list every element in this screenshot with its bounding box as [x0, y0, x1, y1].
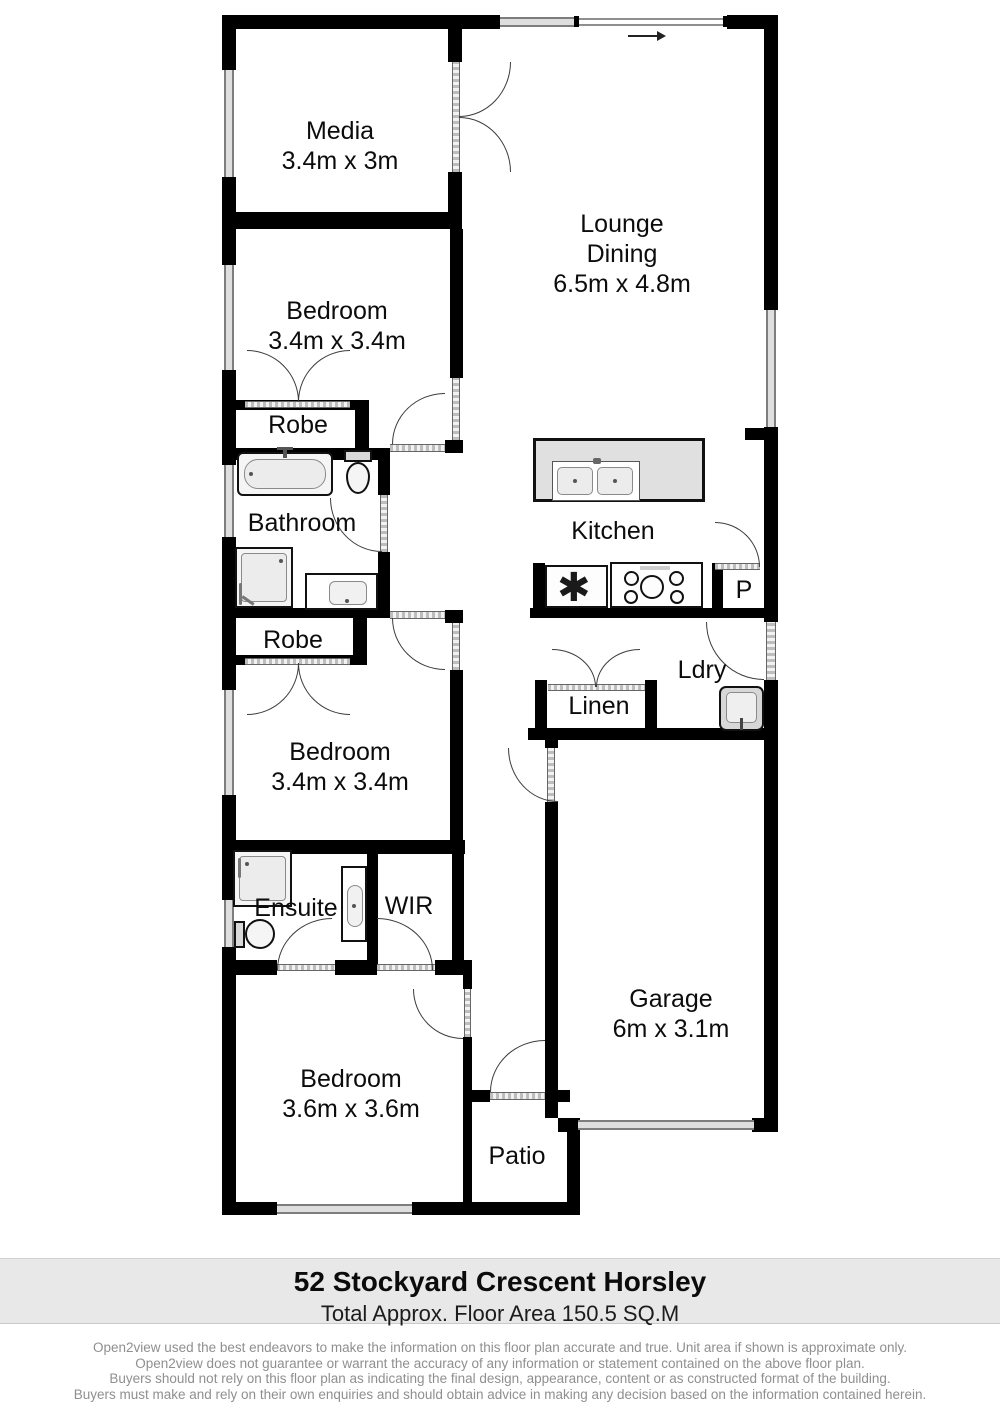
vanity-icon	[305, 573, 378, 610]
room-name: P	[736, 575, 753, 605]
door-arc	[490, 1040, 545, 1092]
room-label-patio: Patio	[489, 1141, 546, 1171]
wall	[222, 960, 277, 975]
wall	[222, 947, 236, 1215]
wall	[378, 448, 390, 495]
toilet-icon	[245, 919, 275, 949]
door-opening	[390, 444, 445, 452]
wall	[463, 975, 472, 989]
bathtub-icon	[237, 452, 333, 496]
room-label-pantry: P	[736, 575, 753, 605]
disclaimer-line: Open2view used the best endeavors to mak…	[0, 1340, 1000, 1356]
wall	[558, 1118, 580, 1132]
room-name: Robe	[268, 410, 328, 440]
room-label-bathroom: Bathroom	[248, 508, 356, 538]
sink-icon	[552, 461, 640, 501]
toilet-icon	[344, 450, 372, 462]
kitchen-island	[533, 438, 705, 502]
room-label-ensuite: Ensuite	[254, 893, 337, 923]
door-opening	[452, 623, 460, 670]
disclaimer: Open2view used the best endeavors to mak…	[0, 1340, 1000, 1402]
room-label-lounge-dining: Lounge Dining 6.5m x 4.8m	[553, 209, 691, 299]
wall	[712, 563, 723, 613]
door-arc	[715, 522, 760, 567]
tap-icon	[593, 458, 601, 464]
door-arc	[247, 663, 299, 715]
wall	[222, 212, 462, 229]
wall	[445, 440, 463, 453]
door-arc	[413, 989, 463, 1039]
door-arc	[392, 393, 445, 444]
toilet-icon	[346, 462, 370, 494]
window	[277, 1204, 412, 1214]
room-dims: 3.4m x 3.4m	[271, 767, 409, 797]
door-jamb	[574, 16, 579, 27]
room-label-linen: Linen	[568, 691, 629, 721]
room-dims: 6m x 3.1m	[613, 1014, 730, 1044]
room-name: Robe	[263, 625, 323, 655]
room-name: Patio	[489, 1141, 546, 1171]
room-label-media: Media 3.4m x 3m	[282, 116, 399, 176]
wall	[378, 552, 390, 614]
door-jamb	[723, 16, 728, 27]
wall	[445, 610, 463, 623]
entry-arrow	[628, 31, 668, 41]
door-opening	[452, 378, 460, 440]
door-arc	[277, 918, 332, 970]
glazed-door	[766, 622, 776, 680]
wall	[567, 1132, 580, 1215]
window	[224, 690, 234, 795]
room-label-wir: WIR	[385, 891, 434, 921]
room-label-bedroom3: Bedroom 3.6m x 3.6m	[282, 1064, 420, 1124]
wall	[448, 172, 462, 229]
door-arc	[459, 62, 511, 117]
room-label-bedroom1: Bedroom 3.4m x 3.4m	[268, 296, 406, 356]
room-name: Bedroom	[282, 1064, 420, 1094]
room-name: Ldry	[678, 655, 727, 685]
door-arc	[459, 117, 511, 172]
room-label-garage: Garage 6m x 3.1m	[613, 984, 730, 1044]
wall	[545, 802, 558, 1118]
room-label-bedroom2: Bedroom 3.4m x 3.4m	[271, 737, 409, 797]
disclaimer-line: Buyers should not rely on this floor pla…	[0, 1371, 1000, 1387]
wall	[764, 427, 778, 622]
wall	[450, 229, 463, 378]
door-opening	[490, 1092, 545, 1100]
room-dims: 3.4m x 3.4m	[268, 326, 406, 356]
door-arc	[247, 350, 299, 402]
room-name: Garage	[613, 984, 730, 1014]
room-name: Lounge	[553, 209, 691, 239]
wall	[472, 1090, 490, 1102]
wall	[745, 428, 778, 440]
room-name: WIR	[385, 891, 434, 921]
door-arc	[298, 663, 350, 715]
window	[224, 900, 234, 947]
garage-door	[578, 1120, 754, 1130]
wall	[752, 1118, 778, 1132]
door-arc	[298, 350, 350, 402]
room-dims: 6.5m x 4.8m	[553, 269, 691, 299]
wall	[545, 728, 558, 748]
wall	[764, 680, 778, 1132]
window	[224, 265, 234, 370]
floor-area: Total Approx. Floor Area 150.5 SQ.M	[0, 1301, 1000, 1327]
room-name: Kitchen	[571, 516, 654, 546]
room-dims: 3.6m x 3.6m	[282, 1094, 420, 1124]
room-name: Bathroom	[248, 508, 356, 538]
window	[500, 17, 577, 27]
appliance-icon: ✱	[545, 565, 608, 608]
wall	[533, 563, 545, 613]
floorplan-page: ✱ Media 3.4m x 3m Lounge Dining 6.5m x 4…	[0, 0, 1000, 1415]
disclaimer-line: Buyers must make and rely on their own e…	[0, 1387, 1000, 1403]
room-name: Bedroom	[268, 296, 406, 326]
room-name: Dining	[553, 239, 691, 269]
sliding-door	[577, 24, 725, 26]
wall	[222, 15, 236, 70]
wall	[412, 1202, 580, 1215]
appliance-symbol: ✱	[557, 568, 591, 608]
footer-band: 52 Stockyard Crescent Horsley Total Appr…	[0, 1258, 1000, 1324]
wall	[452, 845, 464, 967]
wall	[645, 680, 657, 740]
room-name: Bedroom	[271, 737, 409, 767]
room-label-robe2: Robe	[263, 625, 323, 655]
wall	[448, 15, 462, 62]
wall	[355, 400, 369, 448]
sliding-door	[577, 18, 725, 20]
door-arc	[552, 649, 596, 687]
room-dims: 3.4m x 3m	[282, 146, 399, 176]
room-name: Linen	[568, 691, 629, 721]
wall	[353, 618, 367, 665]
shower-icon	[235, 547, 293, 608]
door-arc	[377, 918, 433, 970]
wall	[222, 1202, 277, 1215]
property-address: 52 Stockyard Crescent Horsley	[0, 1266, 1000, 1298]
room-label-laundry: Ldry	[678, 655, 727, 685]
door-opening	[464, 989, 471, 1037]
door-arc	[392, 618, 445, 670]
cooktop-icon	[610, 562, 703, 608]
window	[224, 70, 234, 177]
door-arc	[596, 649, 640, 687]
toilet-icon	[234, 921, 245, 948]
window	[224, 465, 234, 537]
wall	[764, 15, 778, 310]
room-name: Ensuite	[254, 893, 337, 923]
room-name: Media	[282, 116, 399, 146]
wall	[450, 670, 463, 845]
disclaimer-line: Open2view does not guarantee or warrant …	[0, 1356, 1000, 1372]
room-label-robe1: Robe	[268, 410, 328, 440]
door-opening	[245, 401, 350, 408]
window	[766, 310, 776, 427]
wall	[463, 1037, 472, 1202]
vanity-icon	[341, 866, 367, 942]
laundry-tub-icon	[719, 686, 764, 731]
door-arc	[508, 748, 558, 802]
room-label-kitchen: Kitchen	[571, 516, 654, 546]
